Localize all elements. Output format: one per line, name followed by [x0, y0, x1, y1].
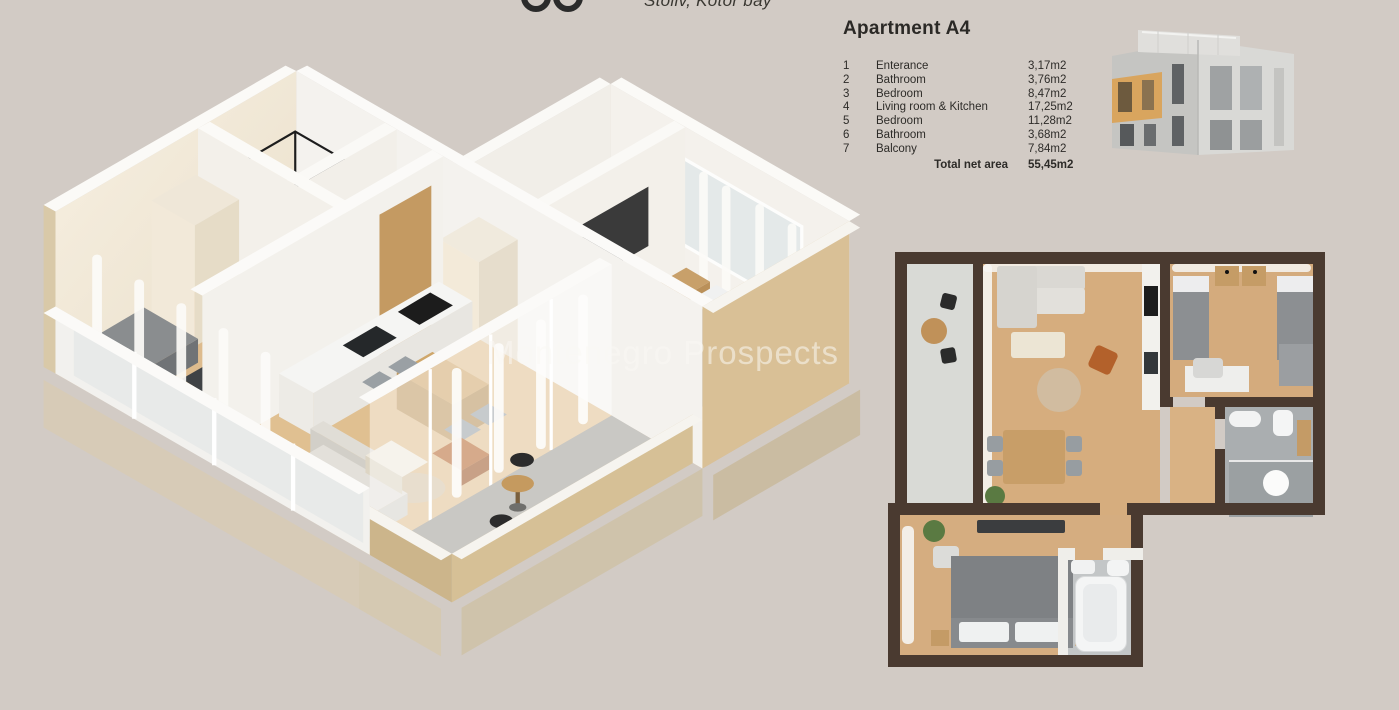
- crib: [1193, 358, 1223, 378]
- lamp: [1225, 270, 1229, 274]
- dining-table: [1003, 430, 1065, 484]
- building-exterior-image: [1098, 24, 1316, 172]
- top-floor-plan-2d: [885, 248, 1330, 672]
- wall: [1058, 548, 1068, 655]
- wall: [895, 252, 907, 515]
- hallway-floor: [1170, 407, 1215, 515]
- wall: [1313, 252, 1325, 515]
- wall: [888, 655, 1143, 667]
- wall: [973, 264, 983, 515]
- wall: [888, 503, 900, 667]
- kitchen-sink: [1144, 352, 1158, 374]
- blanket: [951, 556, 1073, 618]
- plant: [923, 520, 945, 542]
- dining-chair: [987, 460, 1003, 476]
- shower-light: [1263, 470, 1289, 496]
- cooktop: [1144, 286, 1158, 316]
- toilet: [1273, 410, 1293, 436]
- dining-chair: [1066, 460, 1082, 476]
- dresser: [977, 520, 1065, 533]
- wall: [1127, 503, 1325, 515]
- toilet: [1107, 560, 1129, 576]
- wall: [1103, 548, 1143, 560]
- dining-chair: [987, 436, 1003, 452]
- pillow: [1277, 276, 1313, 292]
- sofa: [997, 266, 1037, 328]
- wall: [895, 503, 1100, 515]
- bathtub-inner: [1083, 584, 1117, 642]
- nightstand: [931, 630, 949, 646]
- wall: [895, 252, 1325, 264]
- rug: [1037, 368, 1081, 412]
- coffee-table: [1011, 332, 1065, 358]
- desk: [1215, 266, 1239, 286]
- dining-chair: [1066, 436, 1082, 452]
- watermark: Montenegro Prospects: [487, 334, 839, 372]
- bath-cabinet: [1297, 420, 1311, 456]
- pillow: [1173, 276, 1209, 292]
- desk: [1242, 266, 1266, 286]
- bathroom-sink: [1071, 560, 1095, 574]
- wall: [1063, 548, 1075, 560]
- pillow: [959, 622, 1009, 642]
- bathroom-sink: [1229, 411, 1261, 427]
- curtain: [902, 526, 914, 644]
- wall: [1131, 515, 1143, 667]
- brochure-page: Stoliv, Kotor bay Apartment A4 1Enteranc…: [0, 0, 1399, 710]
- lamp: [1253, 270, 1257, 274]
- wardrobe: [1279, 344, 1313, 386]
- wall: [1215, 407, 1225, 419]
- wall: [1205, 397, 1325, 407]
- balcony-chair: [940, 347, 957, 364]
- wall: [1160, 264, 1170, 405]
- balcony-table: [921, 318, 947, 344]
- wall: [1160, 397, 1173, 407]
